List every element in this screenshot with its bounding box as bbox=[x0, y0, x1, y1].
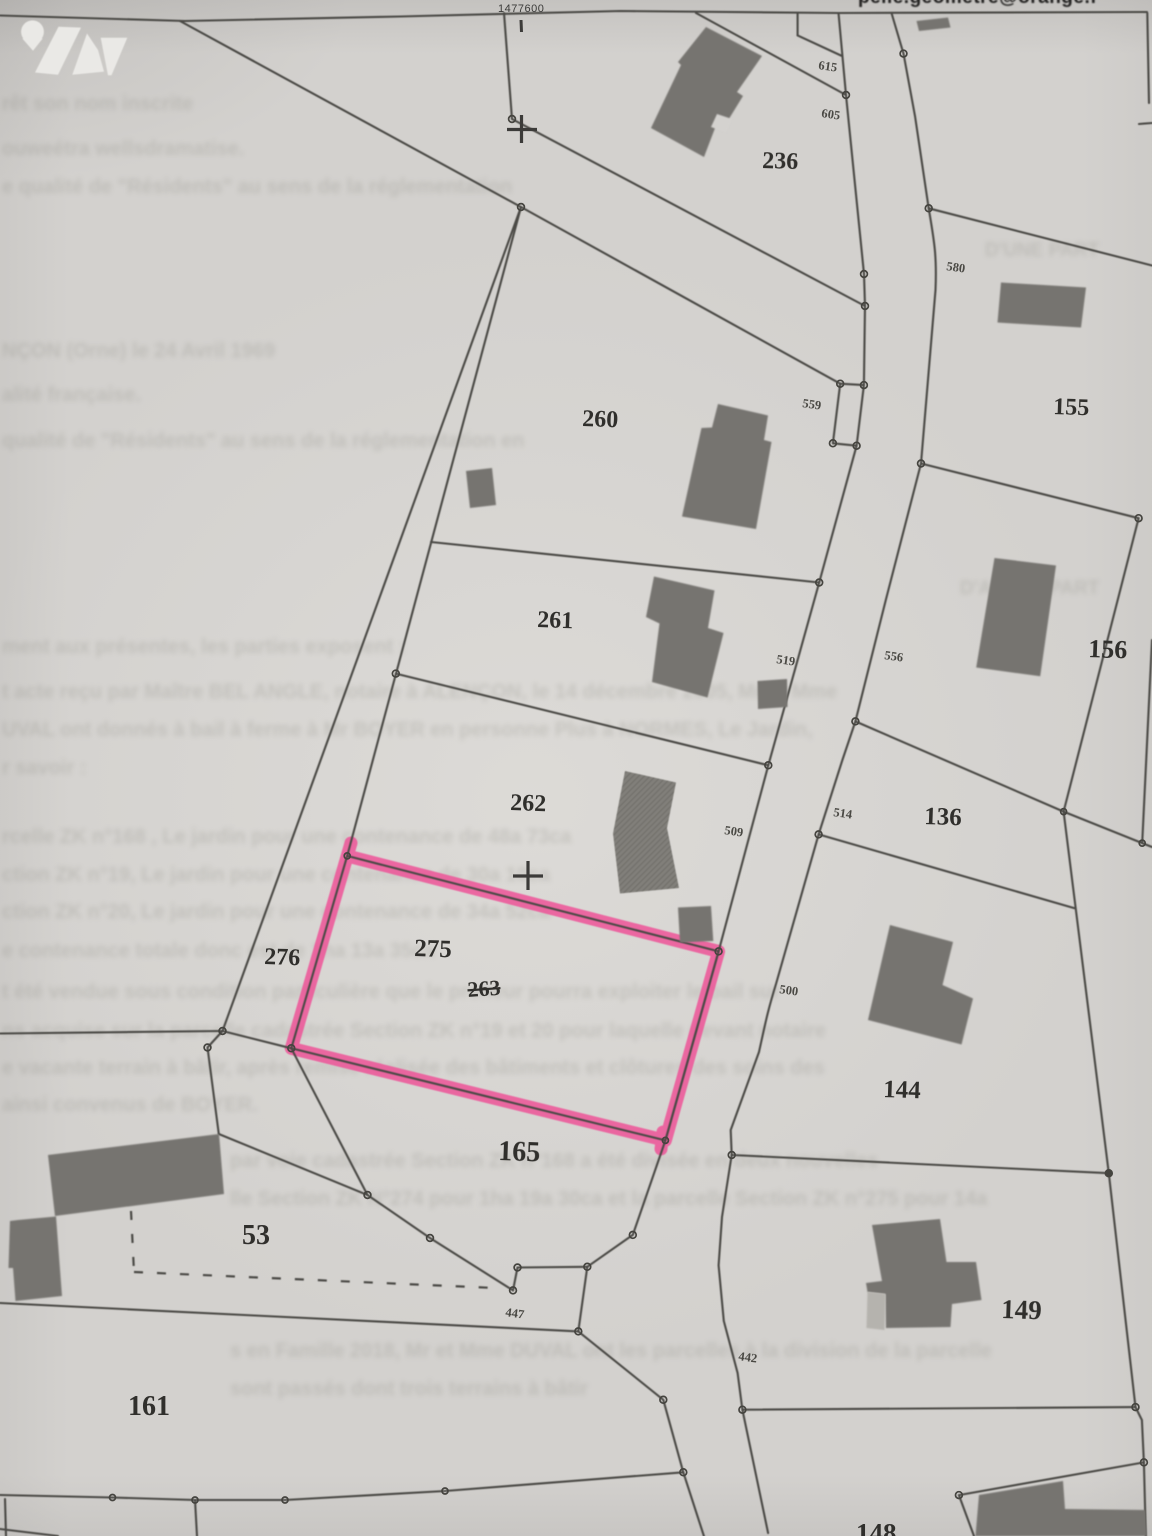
svg-text:275: 275 bbox=[414, 935, 452, 963]
svg-text:500: 500 bbox=[779, 982, 800, 998]
svg-text:144: 144 bbox=[883, 1076, 922, 1104]
svg-text:53: 53 bbox=[242, 1220, 270, 1251]
svg-text:262: 262 bbox=[510, 790, 547, 817]
svg-text:556: 556 bbox=[884, 648, 905, 664]
svg-text:442: 442 bbox=[738, 1349, 759, 1365]
svg-text:519: 519 bbox=[776, 652, 797, 668]
svg-text:605: 605 bbox=[821, 106, 842, 122]
svg-text:276: 276 bbox=[264, 944, 301, 971]
svg-text:263: 263 bbox=[467, 975, 502, 1002]
svg-text:165: 165 bbox=[498, 1136, 541, 1168]
svg-text:447: 447 bbox=[505, 1305, 526, 1321]
svg-text:260: 260 bbox=[582, 406, 619, 433]
svg-text:236: 236 bbox=[762, 148, 799, 175]
svg-text:155: 155 bbox=[1053, 394, 1090, 421]
svg-text:156: 156 bbox=[1088, 634, 1128, 664]
svg-text:514: 514 bbox=[833, 805, 854, 822]
svg-text:148: 148 bbox=[856, 1518, 897, 1536]
svg-text:580: 580 bbox=[946, 259, 967, 275]
svg-text:615: 615 bbox=[818, 58, 839, 74]
svg-text:509: 509 bbox=[724, 823, 745, 839]
svg-text:1477600: 1477600 bbox=[498, 3, 544, 15]
svg-text:149: 149 bbox=[1001, 1294, 1043, 1325]
svg-text:261: 261 bbox=[537, 607, 574, 634]
svg-text:136: 136 bbox=[924, 803, 962, 831]
svg-text:559: 559 bbox=[802, 396, 823, 412]
svg-text:161: 161 bbox=[128, 1391, 170, 1422]
